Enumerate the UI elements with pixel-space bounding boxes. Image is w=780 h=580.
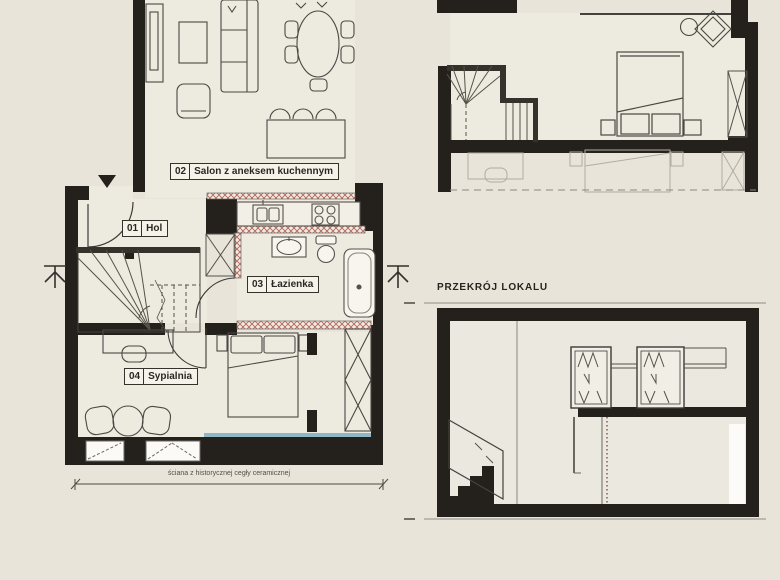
- room-label-sypialnia: 04 Sypialnia: [124, 368, 198, 385]
- room-label-salon: 02 Salon z aneksem kuchennym: [170, 163, 339, 180]
- room-number: 01: [123, 221, 142, 236]
- shaft-column: [206, 234, 235, 276]
- north-arrow-icon: [44, 266, 66, 288]
- room-label-hol: 01 Hol: [122, 220, 168, 237]
- section-drawing: [404, 303, 766, 519]
- architectural-drawing: [0, 0, 780, 580]
- window-band: [204, 433, 371, 437]
- wall-pier: [307, 410, 317, 432]
- room-name: Salon z aneksem kuchennym: [190, 164, 338, 179]
- room-name: Łazienka: [267, 277, 318, 292]
- section-title: PRZEKRÓJ LOKALU: [437, 282, 548, 293]
- kitchen: [237, 200, 360, 226]
- kitchen-counter: [237, 202, 360, 226]
- mezzanine-plan: [437, 0, 758, 192]
- ground-floor-plan: [65, 0, 388, 490]
- lower-floor-ghost: [450, 150, 756, 192]
- bathtub-icon: [344, 249, 375, 317]
- wall-pier: [307, 333, 317, 355]
- floor-plan-sheet: 01 Hol 02 Salon z aneksem kuchennym 03 Ł…: [0, 0, 780, 580]
- room-number: 03: [248, 277, 267, 292]
- room-name: Sypialnia: [144, 369, 197, 384]
- toilet-icon: [316, 236, 336, 263]
- window-light: [729, 424, 745, 504]
- washbasin-icon: [272, 237, 306, 257]
- north-arrow-icon: [387, 266, 409, 288]
- dimension-note: ściana z historycznej cegły ceramicznej: [109, 470, 349, 477]
- dimension-line: [71, 479, 388, 490]
- room-number: 04: [125, 369, 144, 384]
- room-label-lazienka: 03 Łazienka: [247, 276, 319, 293]
- room-name: Hol: [142, 221, 167, 236]
- room-number: 02: [171, 164, 190, 179]
